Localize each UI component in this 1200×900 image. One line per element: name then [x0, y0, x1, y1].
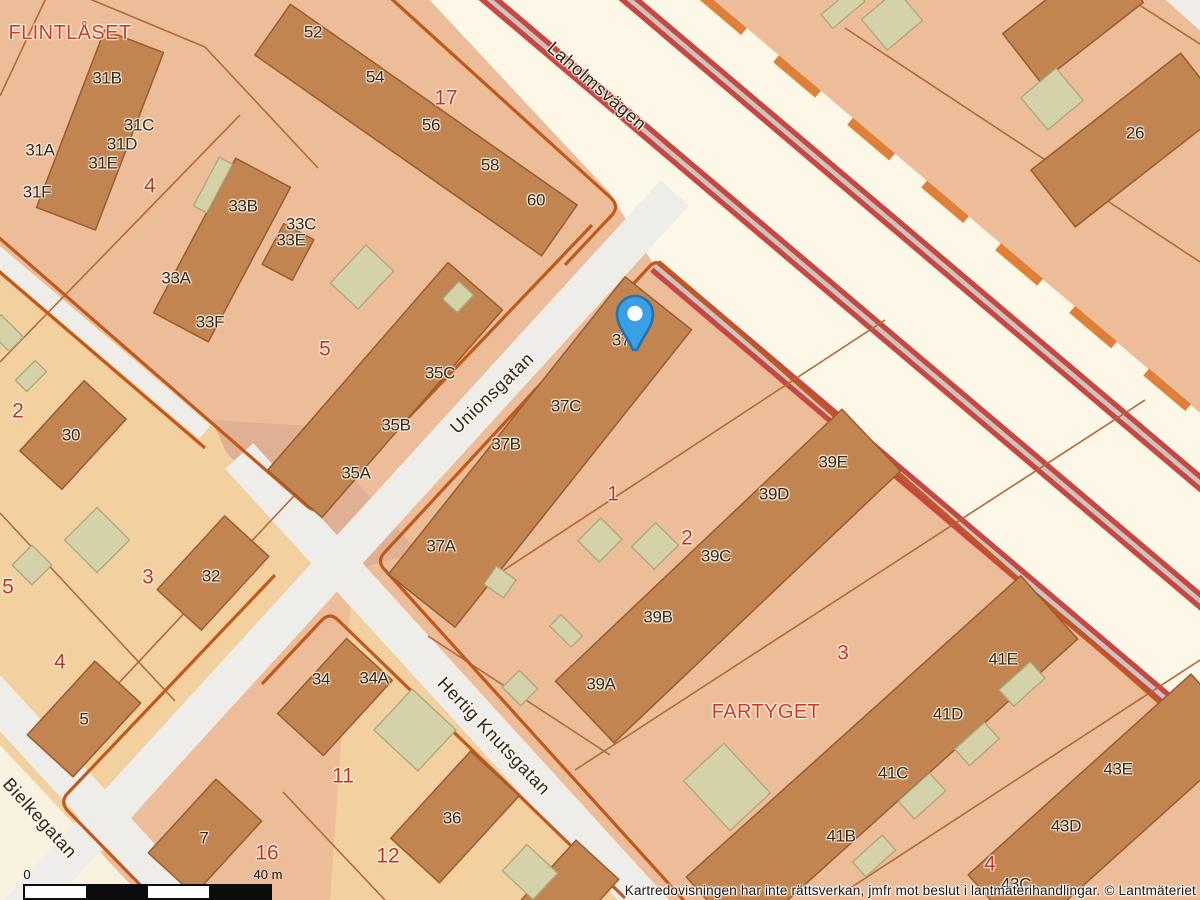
map-base-layer	[0, 0, 1200, 900]
map-attribution: Kartredovisningen har inte rättsverkan, …	[625, 883, 1196, 898]
location-pin[interactable]	[609, 288, 661, 356]
scale-end-label: 40 m	[254, 868, 283, 881]
scale-bar	[23, 884, 272, 900]
map-viewport[interactable]: FLINTLÅSETFARTYGETLaholmsvägenUnionsgata…	[0, 0, 1200, 900]
scale-start-label: 0	[23, 868, 30, 881]
